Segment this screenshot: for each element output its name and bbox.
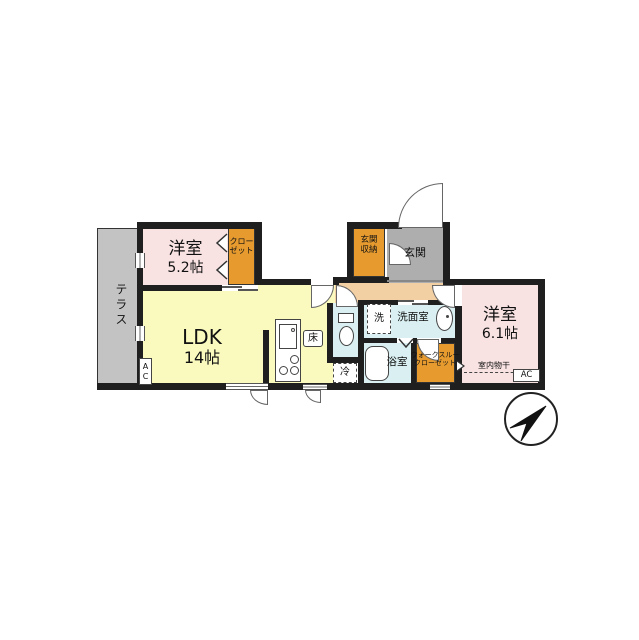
window <box>430 384 450 390</box>
entry-storage-label: 玄関収納 <box>353 233 385 259</box>
stove-burner <box>290 366 299 375</box>
wall <box>263 330 269 383</box>
bedroom2-size: 6.1帖 <box>482 326 518 342</box>
washroom-label: 洗面室 <box>384 311 442 324</box>
wall <box>255 222 262 285</box>
floor-storage: 床 <box>303 330 323 347</box>
sliding-door-leaf <box>398 300 414 302</box>
entry-step-line <box>387 280 443 282</box>
toilet-tank <box>338 313 354 323</box>
sliding-door-leaf <box>412 303 428 305</box>
wall <box>327 303 333 359</box>
ldk-name: LDK <box>182 326 222 349</box>
entry-label: 玄関 <box>387 246 443 260</box>
wall <box>137 222 262 229</box>
casement-window-swing <box>305 390 321 403</box>
sliding-door-leaf <box>238 289 258 291</box>
ldk-label: LDK 14帖 <box>147 321 257 373</box>
wall <box>450 279 545 285</box>
wtc-label: ウォークスルークローゼット <box>404 349 466 369</box>
bedroom2-name: 洋室 <box>483 306 517 326</box>
window <box>226 383 268 390</box>
doorway-gap <box>397 338 413 343</box>
terrace-label: テラス <box>99 255 141 355</box>
bedroom1-size: 5.2帖 <box>167 260 203 276</box>
entry-door-swing <box>398 183 443 228</box>
ac-unit-right: AC <box>513 369 540 382</box>
refrigerator: 冷 <box>333 363 357 383</box>
wall <box>443 222 450 285</box>
floorplan-canvas: テラス 洋室 5.2帖 クローゼット LDK 14帖 玄関収納 玄関 洗面室 洗… <box>0 0 639 640</box>
wall <box>143 285 222 291</box>
bedroom1-label: 洋室 5.2帖 <box>143 234 228 282</box>
bedroom2-label: 洋室 6.1帖 <box>462 300 538 348</box>
closet-label: クローゼット <box>228 233 255 259</box>
wall <box>347 222 402 229</box>
wall <box>347 277 389 283</box>
kitchen-faucet <box>291 328 295 332</box>
washing-machine: 洗 <box>367 304 391 334</box>
compass-circle <box>504 392 558 446</box>
casement-window-swing <box>250 390 268 405</box>
washroom-sink-faucet <box>446 315 449 318</box>
wall <box>333 277 347 283</box>
bedroom1-name: 洋室 <box>169 240 203 260</box>
stove-burner <box>290 355 299 364</box>
toilet-bowl <box>339 326 354 346</box>
ldk-size: 14帖 <box>184 349 220 367</box>
wall <box>455 306 462 385</box>
ac-unit-left: AC <box>139 358 152 385</box>
stove-burner <box>279 366 288 375</box>
sliding-door-leaf <box>222 286 242 288</box>
wall <box>258 279 311 285</box>
